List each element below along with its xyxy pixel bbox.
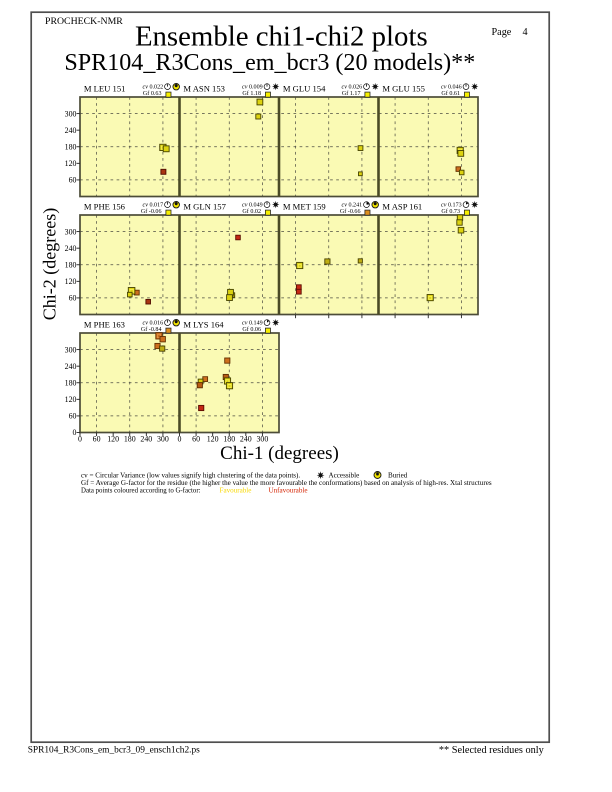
- svg-text:240: 240: [65, 244, 77, 253]
- svg-text:180: 180: [65, 142, 77, 151]
- svg-text:M PHE 156: M PHE 156: [84, 201, 126, 211]
- svg-text:120: 120: [65, 159, 77, 168]
- svg-text:** Selected residues only: ** Selected residues only: [439, 745, 545, 756]
- svg-text:M ASN 153: M ASN 153: [183, 83, 225, 93]
- svg-text:Gf 1.18: Gf 1.18: [242, 90, 261, 97]
- svg-text:Gf -0.66: Gf -0.66: [340, 208, 361, 215]
- svg-text:Gf 0.61: Gf 0.61: [441, 90, 460, 97]
- svg-text:cv 0.173: cv 0.173: [441, 203, 462, 209]
- svg-text:4: 4: [523, 27, 528, 38]
- svg-text:60: 60: [69, 176, 77, 185]
- svg-text:Gf -0.06: Gf -0.06: [141, 208, 162, 215]
- svg-text:cv 0.016: cv 0.016: [143, 321, 164, 327]
- svg-text:cv 0.009: cv 0.009: [242, 85, 263, 91]
- svg-text:M ASP 161: M ASP 161: [382, 201, 422, 211]
- svg-text:120: 120: [65, 277, 77, 286]
- svg-text:Unfavourable: Unfavourable: [269, 486, 308, 494]
- svg-text:120: 120: [65, 395, 77, 404]
- svg-text:cv 0.149: cv 0.149: [242, 321, 263, 327]
- svg-text:Gf 0.63: Gf 0.63: [143, 90, 162, 97]
- svg-text:Gf 0.02: Gf 0.02: [242, 208, 261, 215]
- svg-text:240: 240: [65, 126, 77, 135]
- svg-text:M LYS 164: M LYS 164: [183, 319, 224, 329]
- svg-text:240: 240: [65, 362, 77, 371]
- svg-text:Gf 1.17: Gf 1.17: [342, 90, 361, 97]
- svg-text:cv 0.017: cv 0.017: [143, 203, 164, 209]
- svg-text:Ensemble chi1-chi2 plots: Ensemble chi1-chi2 plots: [135, 21, 428, 53]
- svg-text:M LEU 151: M LEU 151: [84, 83, 126, 93]
- svg-text:M MET 159: M MET 159: [283, 201, 326, 211]
- svg-text:300: 300: [65, 109, 77, 118]
- svg-text:Chi-2 (degrees): Chi-2 (degrees): [39, 208, 60, 320]
- svg-text:cv 0.241: cv 0.241: [342, 203, 363, 209]
- svg-text:M GLN 157: M GLN 157: [183, 201, 226, 211]
- svg-text:SPR104_R3Cons_em_bcr3 (20 mode: SPR104_R3Cons_em_bcr3 (20 models)**: [64, 50, 475, 76]
- svg-text:cv 0.049: cv 0.049: [242, 203, 263, 209]
- svg-text:180: 180: [65, 260, 77, 269]
- svg-text:Data points coloured according: Data points coloured according to G-fact…: [81, 487, 201, 494]
- svg-text:Gf 0.06: Gf 0.06: [242, 326, 261, 333]
- svg-text:SPR104_R3Cons_em_bcr3_09_ensch: SPR104_R3Cons_em_bcr3_09_ensch1ch2.ps: [28, 745, 200, 755]
- svg-text:60: 60: [69, 412, 77, 421]
- svg-text:300: 300: [65, 227, 77, 236]
- svg-text:Chi-1 (degrees): Chi-1 (degrees): [220, 443, 339, 464]
- svg-text:M GLU 155: M GLU 155: [382, 83, 425, 93]
- svg-text:cv 0.022: cv 0.022: [143, 85, 164, 91]
- svg-text:PROCHECK-NMR: PROCHECK-NMR: [45, 16, 123, 27]
- svg-text:0: 0: [73, 428, 77, 437]
- svg-text:cv 0.026: cv 0.026: [342, 85, 363, 91]
- svg-text:Page: Page: [492, 27, 512, 38]
- svg-text:Gf -0.84: Gf -0.84: [141, 326, 162, 333]
- svg-text:M PHE 163: M PHE 163: [84, 319, 125, 329]
- svg-text:Favourable: Favourable: [220, 486, 252, 494]
- svg-text:cv 0.046: cv 0.046: [441, 85, 462, 91]
- svg-text:180: 180: [65, 378, 77, 387]
- svg-text:60: 60: [69, 294, 77, 303]
- svg-text:300: 300: [65, 345, 77, 354]
- svg-text:Gf 0.73: Gf 0.73: [441, 208, 460, 215]
- svg-text:M GLU 154: M GLU 154: [283, 83, 326, 93]
